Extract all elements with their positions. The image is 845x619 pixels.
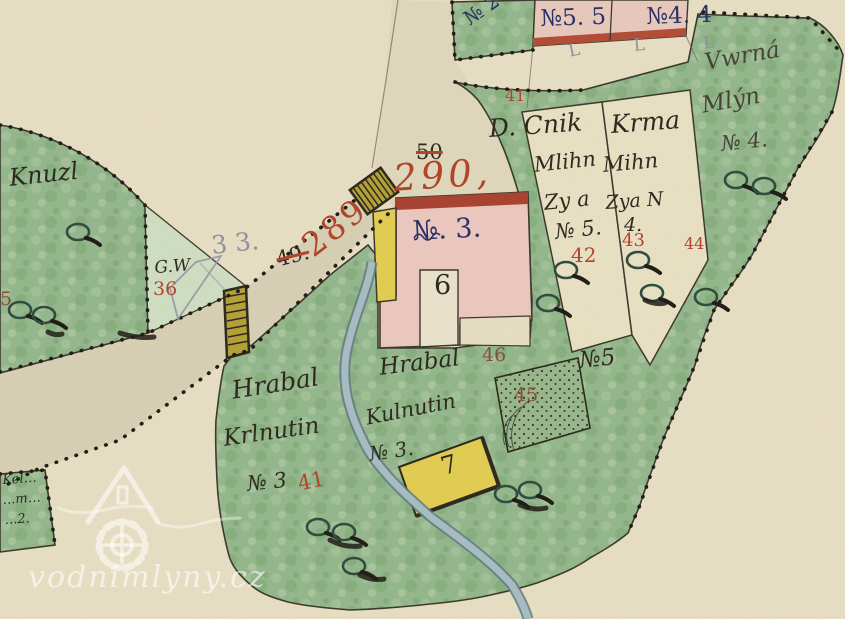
map-canvas [0, 0, 845, 619]
paper-grain [0, 0, 845, 619]
historic-map-scan: KnuzlG.W363 3.28949.50290,№. 3.67HrabalK… [0, 0, 845, 619]
